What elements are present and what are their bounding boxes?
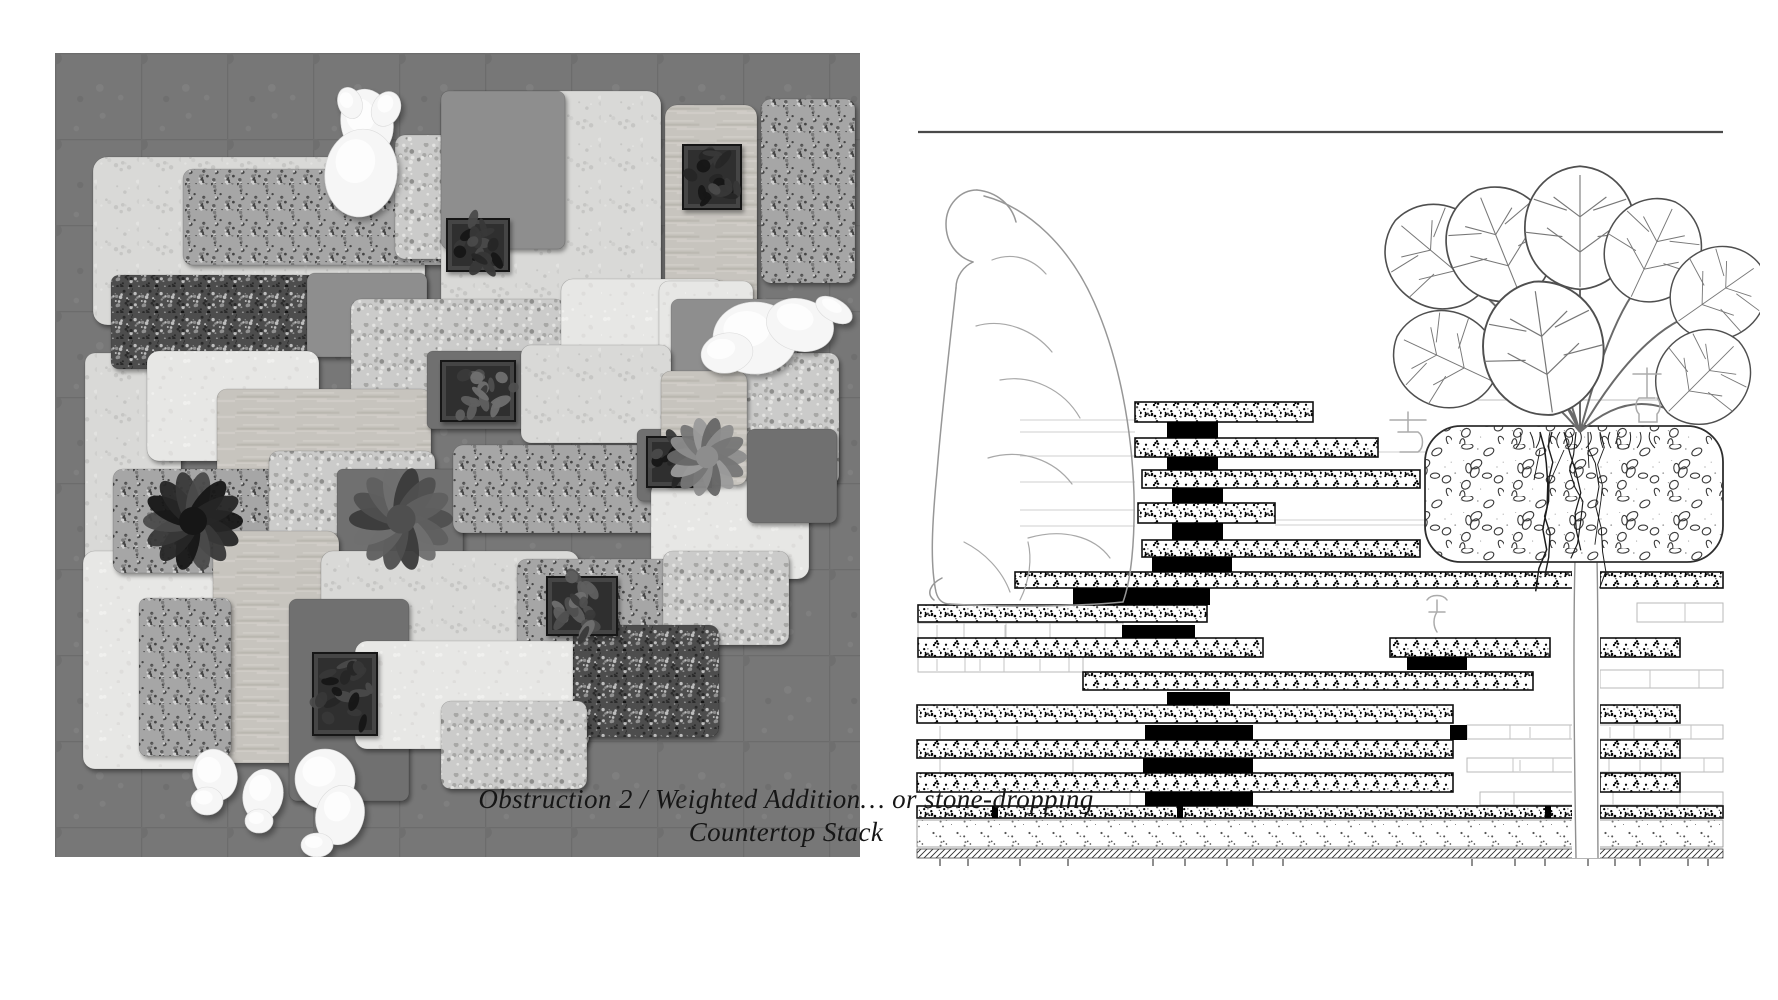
stone-spacer-block [1545, 806, 1551, 818]
section-countertop-slab [1600, 806, 1723, 818]
countertop-slab-gm [139, 598, 231, 756]
section-countertop-slab [917, 705, 1453, 723]
section-countertop-slab [917, 740, 1453, 758]
section-countertop-slab [1600, 638, 1680, 657]
section-countertop-slab [1600, 773, 1680, 792]
section-countertop-slab [1600, 572, 1723, 588]
section-drawing-panel [880, 80, 1760, 870]
planter-box [441, 361, 521, 422]
presentation-sheet: Obstruction 2 / Weighted Addition… or st… [0, 0, 1778, 1000]
stone-spacer-block [1407, 657, 1467, 670]
countertop-stack-section-drawing [880, 80, 1760, 870]
countertop-slab-gd [573, 625, 719, 737]
section-countertop-slab [1390, 638, 1550, 657]
hatched-base-layer [917, 849, 1723, 858]
stone-spacer-block [1167, 692, 1230, 705]
stone-course-row [1600, 670, 1723, 688]
section-countertop-slab [1135, 402, 1313, 422]
countertop-slab-tz [441, 701, 587, 789]
section-countertop-slab [1138, 503, 1275, 523]
stone-spacer-block [1122, 625, 1195, 638]
section-countertop-slab [1142, 470, 1420, 488]
section-countertop-slab [918, 605, 1207, 622]
section-countertop-slab [1083, 672, 1533, 690]
planter-box [447, 208, 509, 278]
section-countertop-slab [1015, 572, 1573, 588]
planter-box [681, 145, 742, 209]
countertop-slab-pd [747, 429, 837, 523]
countertop-slab-gm [453, 445, 665, 533]
stone-spacer-block [1172, 488, 1223, 503]
stone-course-row [918, 623, 1123, 638]
countertop-stack-plan-render [55, 53, 860, 857]
stone-spacer-block [1143, 758, 1253, 773]
stone-spacer-block [1167, 422, 1218, 438]
stone-spacer-block [1167, 457, 1218, 470]
stone-course-row [918, 657, 1083, 672]
stone-spacer-block [1145, 725, 1253, 740]
planter-box [547, 566, 617, 646]
caption-line-1: Obstruction 2 / Weighted Addition… or st… [386, 783, 1186, 816]
section-countertop-slab [1600, 705, 1680, 723]
stone-course-row [1480, 792, 1723, 805]
caption: Obstruction 2 / Weighted Addition… or st… [386, 783, 1186, 849]
stone-spacer-block [1073, 588, 1210, 605]
section-countertop-slab [918, 638, 1263, 657]
planter-box [308, 653, 377, 735]
stone-course-row [1637, 603, 1723, 622]
section-countertop-slab [1600, 740, 1680, 758]
section-countertop-slab [1135, 438, 1378, 457]
caption-line-2: Countertop Stack [386, 816, 1186, 849]
section-countertop-slab [1142, 540, 1420, 557]
stone-spacer-block [1450, 725, 1467, 740]
countertop-slab-gm [761, 99, 855, 283]
countertop-slab-ml [521, 345, 671, 443]
stone-spacer-block [1152, 557, 1232, 572]
stone-spacer-block [1172, 523, 1223, 540]
plan-render-panel [55, 53, 860, 857]
